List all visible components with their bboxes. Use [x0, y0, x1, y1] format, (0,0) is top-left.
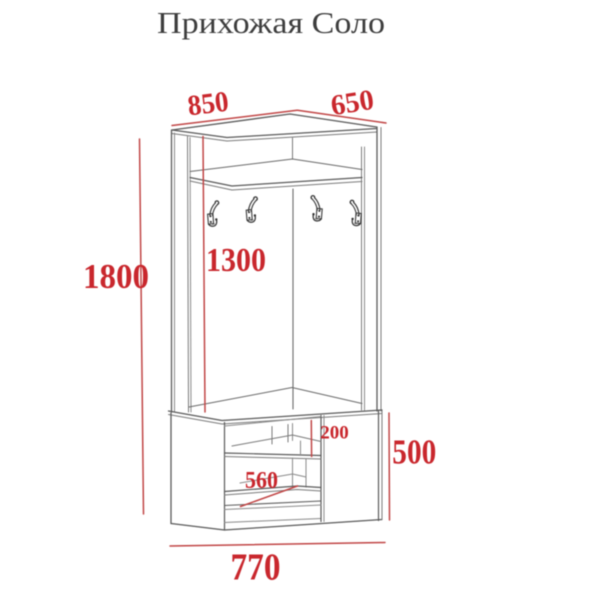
svg-text:200: 200: [320, 423, 349, 444]
svg-text:850: 850: [186, 86, 231, 123]
svg-text:650: 650: [329, 84, 376, 122]
svg-text:1800: 1800: [83, 257, 149, 296]
svg-text:1300: 1300: [206, 242, 266, 279]
svg-text:560: 560: [245, 468, 278, 494]
svg-text:770: 770: [231, 547, 281, 589]
svg-text:Прихожая Соло: Прихожая Соло: [157, 5, 385, 40]
svg-text:500: 500: [392, 433, 436, 472]
